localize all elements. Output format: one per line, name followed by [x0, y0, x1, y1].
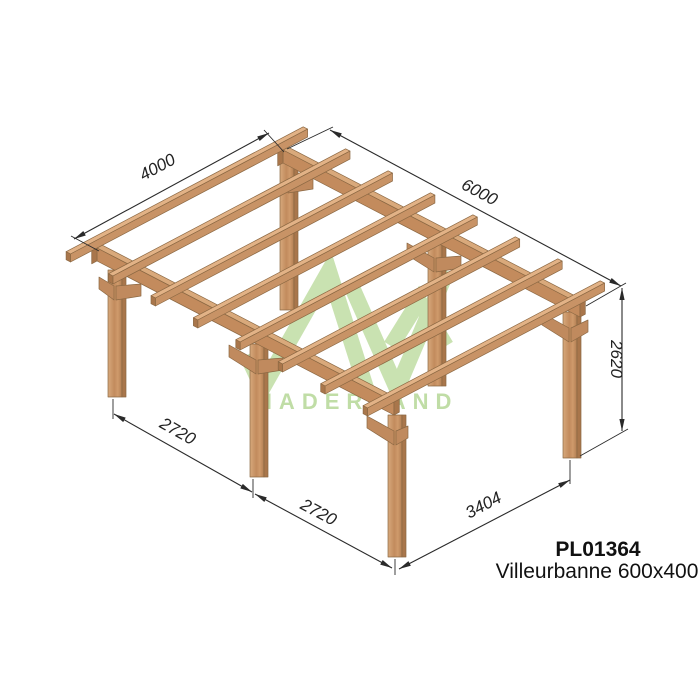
dim-3404-bottom-right: 3404 — [399, 460, 570, 569]
pergola-technical-drawing: MADERLAND — [0, 0, 700, 700]
posts — [108, 163, 581, 557]
dim-2620-height-right: 2620 — [580, 288, 628, 456]
pergola-structure — [66, 127, 605, 557]
product-reference: PL01364 Villeurbanne 600x400 — [496, 538, 699, 583]
dim-2720-bay2: 2720 — [255, 494, 395, 575]
dim-label-2720-2: 2720 — [297, 494, 341, 529]
dim-label-2620: 2620 — [607, 339, 626, 378]
dim-label-6000: 6000 — [458, 175, 501, 210]
dim-label-2720-1: 2720 — [156, 413, 200, 449]
dim-label-4000: 4000 — [136, 150, 179, 185]
brace — [116, 284, 141, 300]
pergola-product-sheet: MADERLAND — [0, 0, 700, 700]
dim-2720-bay1: 2720 — [113, 399, 253, 498]
product-name: Villeurbanne 600x400 — [496, 560, 699, 583]
product-code: PL01364 — [555, 538, 641, 561]
